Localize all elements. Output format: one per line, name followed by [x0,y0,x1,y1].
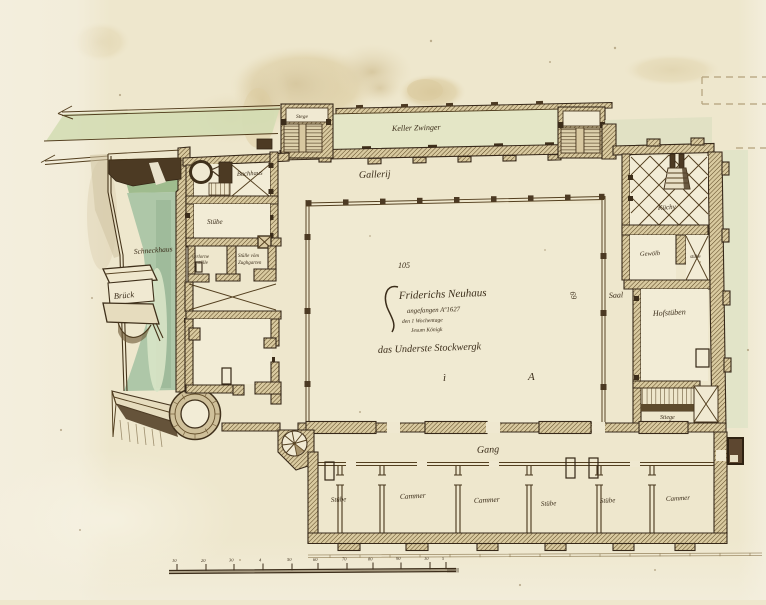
svg-text:A: A [527,371,535,383]
svg-text:Stege: Stege [296,114,308,120]
svg-text:ì: ì [443,372,446,384]
svg-text:Stübe: Stübe [207,218,223,226]
svg-text:105: 105 [398,261,410,270]
svg-text:30: 30 [229,558,234,563]
svg-text:50: 50 [287,557,292,562]
svg-text:Stübe: Stübe [600,496,616,505]
svg-text:verlorne: verlorne [192,255,210,260]
svg-text:90: 90 [396,556,401,561]
svg-text:Keller Zwinger: Keller Zwinger [391,123,442,133]
svg-text:10: 10 [424,556,429,561]
svg-text:10: 10 [172,558,177,563]
svg-text:Hofstüben: Hofstüben [652,307,686,318]
svg-text:60: 60 [313,557,318,562]
svg-text:Küchy: Küchy [657,203,677,212]
svg-text:5: 5 [442,556,444,561]
svg-text:Stübe: Stübe [331,495,347,504]
svg-text:Gang: Gang [477,444,500,456]
svg-text:Cammer: Cammer [666,494,691,503]
svg-text:Brück: Brück [113,289,134,301]
svg-text:20: 20 [201,558,206,563]
svg-text:70: 70 [342,557,347,562]
svg-text:Gallerij: Gallerij [359,169,391,181]
svg-text:80: 80 [368,557,373,562]
svg-text:Stübe: Stübe [541,499,557,508]
svg-text:Stülle vöm: Stülle vöm [238,254,259,259]
svg-text:Gewölb: Gewölb [640,250,661,258]
svg-text:Saal: Saal [609,290,624,300]
svg-text:Cammer: Cammer [474,495,500,505]
svg-text:stübe: stübe [690,255,701,260]
svg-text:Cammer: Cammer [400,491,426,501]
svg-text:Zughgarten: Zughgarten [238,261,262,266]
svg-text:Bachhaus: Bachhaus [237,170,263,178]
svg-text:Jesum Königk: Jesum Königk [411,327,443,334]
svg-text:Stiege: Stiege [660,415,675,421]
